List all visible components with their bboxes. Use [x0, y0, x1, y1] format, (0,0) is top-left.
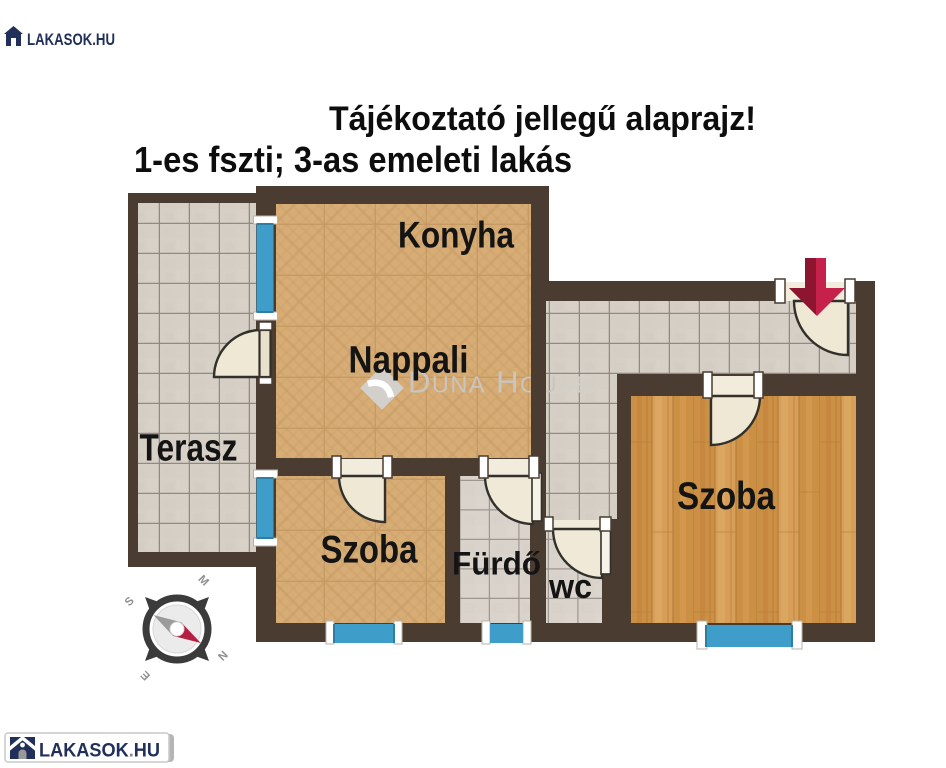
svg-text:LAKASOK.HU: LAKASOK.HU [39, 740, 160, 762]
svg-text:Szoba: Szoba [321, 528, 418, 571]
svg-text:Tájékoztató jellegű alaprajz!: Tájékoztató jellegű alaprajz! [329, 100, 756, 138]
svg-text:LAKASOK.HU: LAKASOK.HU [27, 31, 115, 49]
svg-text:Fürdő: Fürdő [452, 546, 541, 582]
svg-text:Terasz: Terasz [140, 427, 238, 469]
svg-text:wc: wc [548, 568, 592, 606]
svg-text:Szoba: Szoba [677, 475, 775, 518]
svg-text:1-es fszti; 3-as emeleti lakás: 1-es fszti; 3-as emeleti lakás [134, 139, 572, 180]
svg-text:Konyha: Konyha [398, 215, 514, 256]
svg-text:Nappali: Nappali [349, 340, 469, 382]
